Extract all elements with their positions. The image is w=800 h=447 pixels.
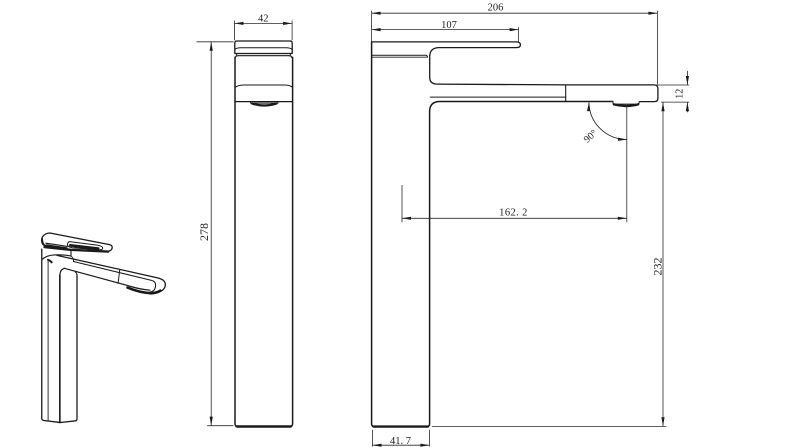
svg-text:42: 42 (258, 14, 269, 25)
svg-text:232: 232 (651, 258, 665, 276)
svg-text:90°: 90° (582, 128, 600, 146)
svg-text:278: 278 (197, 223, 211, 241)
svg-text:206: 206 (488, 3, 504, 14)
svg-text:41. 7: 41. 7 (390, 436, 411, 447)
svg-text:162. 2: 162. 2 (499, 207, 528, 218)
svg-text:12: 12 (675, 89, 686, 99)
svg-text:107: 107 (441, 20, 457, 31)
